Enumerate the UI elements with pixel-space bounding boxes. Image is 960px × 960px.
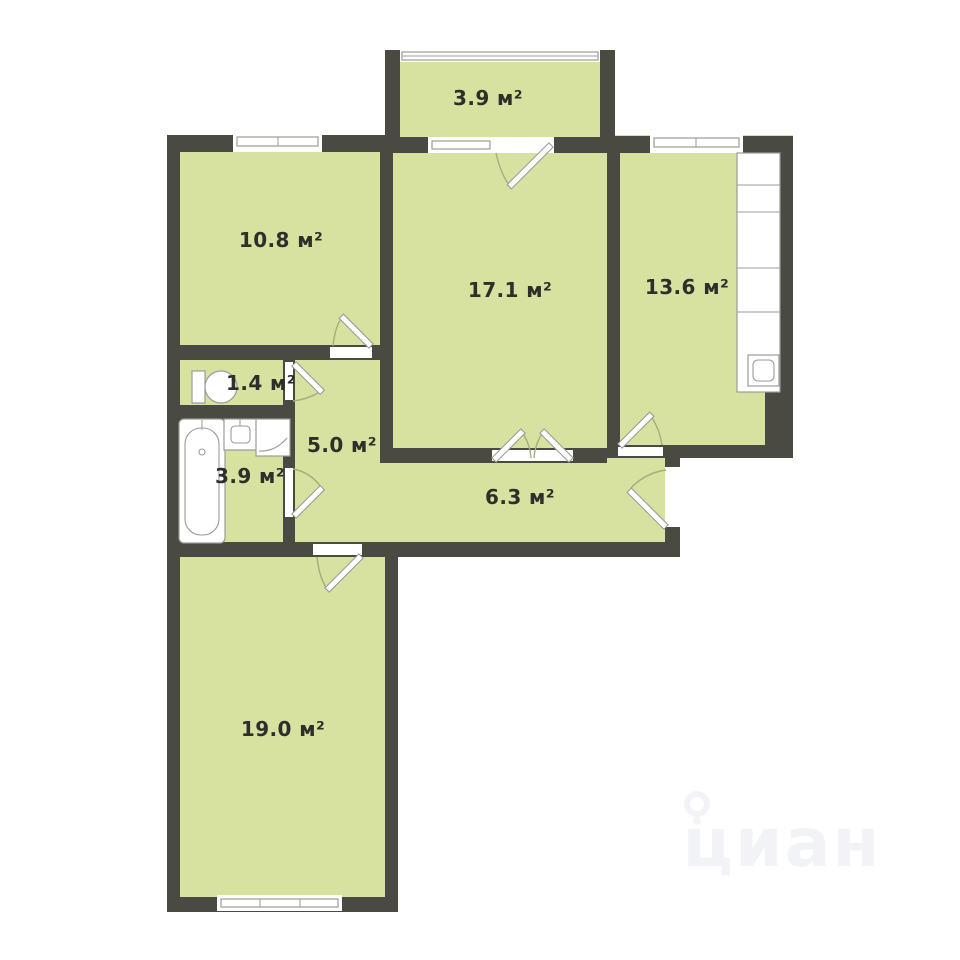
washing-machine-icon xyxy=(256,419,290,456)
entry-door-opening xyxy=(665,467,680,527)
floor-plan: циан xyxy=(0,0,960,960)
toilet-tank-icon xyxy=(192,371,205,403)
room-label-wc: 1.4 м² xyxy=(226,371,296,395)
wall xyxy=(600,50,615,140)
room-label-bedroom: 10.8 м² xyxy=(239,228,323,252)
wall xyxy=(385,542,398,912)
center-right-floor xyxy=(380,135,793,458)
door-opening xyxy=(330,347,372,358)
room-label-loggia: 3.9 м² xyxy=(453,86,523,110)
cian-watermark: циан xyxy=(683,794,882,883)
room-label-corridor: 6.3 м² xyxy=(485,485,555,509)
door-opening xyxy=(313,544,362,555)
door-opening xyxy=(618,447,663,456)
room-label-kitchen: 13.6 м² xyxy=(645,275,729,299)
room-label-bathroom: 3.9 м² xyxy=(215,464,285,488)
wall xyxy=(167,542,680,557)
balcony-window-sill xyxy=(432,141,490,149)
wall xyxy=(167,135,180,912)
room-label-bedroom-2: 19.0 м² xyxy=(241,717,325,741)
wall xyxy=(607,136,620,458)
wall xyxy=(167,405,295,420)
floor-plan-canvas: циан xyxy=(0,0,960,960)
room-label-hall: 5.0 м² xyxy=(307,433,377,457)
watermark-label: циан xyxy=(683,804,882,883)
door-opening xyxy=(285,468,293,517)
wall xyxy=(779,136,793,403)
window-sill xyxy=(221,899,338,907)
wall xyxy=(385,50,400,140)
room-label-living-room: 17.1 м² xyxy=(468,278,552,302)
wall xyxy=(380,135,393,463)
